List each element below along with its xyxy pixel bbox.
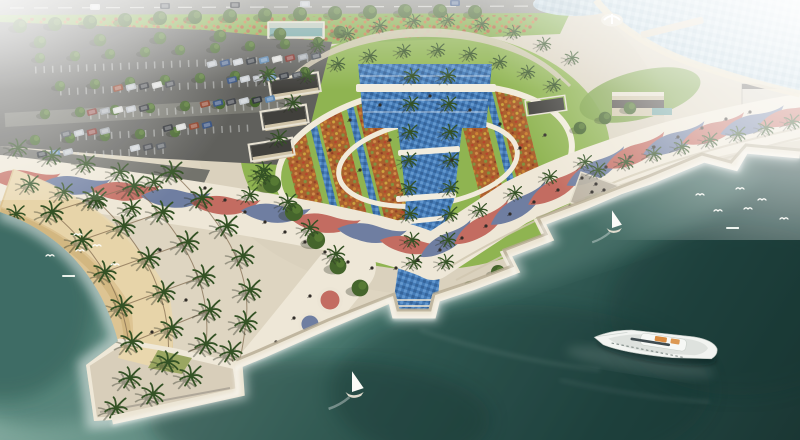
atmosphere [0,0,800,440]
light-wash [0,0,800,440]
waterfront-park-rendering [0,0,800,440]
scene-canvas [0,0,800,440]
